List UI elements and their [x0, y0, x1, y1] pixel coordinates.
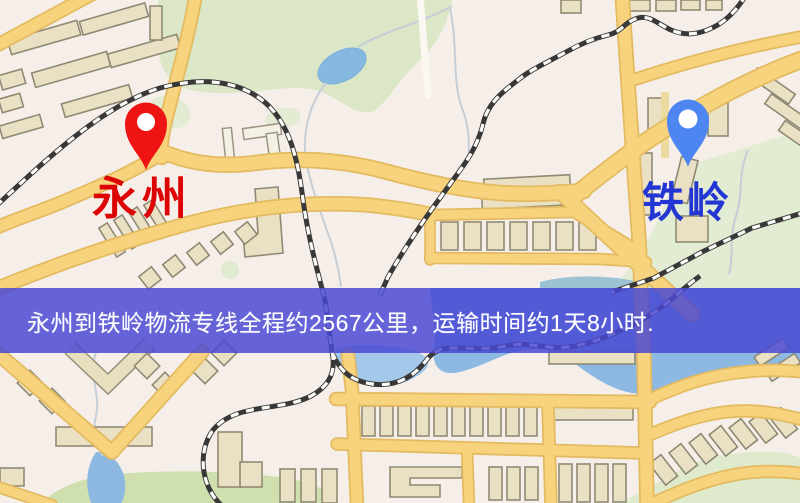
map-background: [0, 0, 800, 503]
route-info-text: 永州到铁岭物流专线全程约2567公里，运输时间约1天8小时.: [0, 304, 654, 338]
destination-pin-icon: [658, 97, 718, 169]
route-info-banner: 永州到铁岭物流专线全程约2567公里，运输时间约1天8小时.: [0, 288, 800, 353]
destination-city-label: 铁岭: [642, 183, 732, 225]
logistics-route-map: 永州 铁岭 永州到铁岭物流专线全程约2567公里，运输时间约1天8小时.: [0, 0, 800, 503]
origin-city-label: 永州: [92, 177, 192, 222]
origin-pin-icon: [116, 100, 176, 172]
